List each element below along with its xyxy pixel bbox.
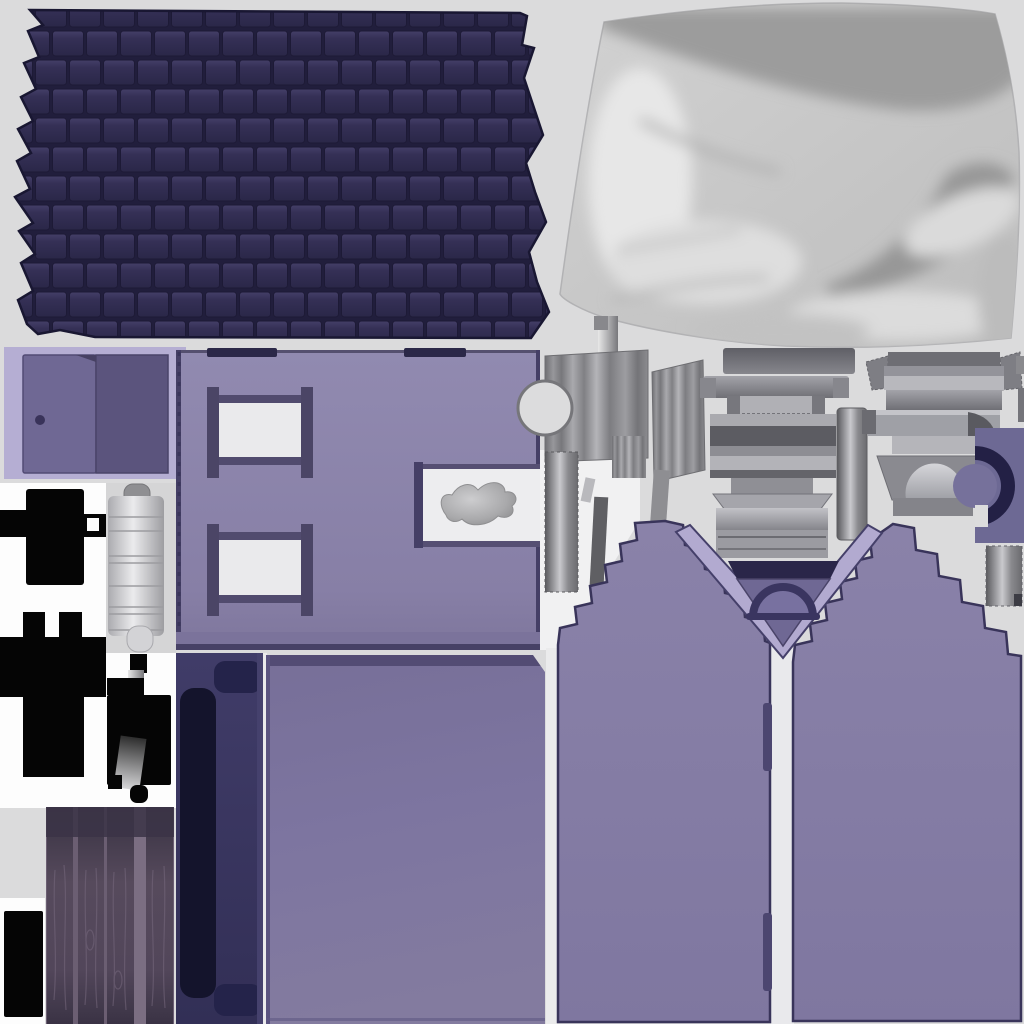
- hardware-black: [108, 775, 122, 789]
- floor-left-edge: [266, 655, 270, 1024]
- window-post: [301, 524, 313, 616]
- roof-shingle-texture: [15, 10, 549, 338]
- part-tab: [833, 378, 849, 398]
- door-panel-island: [4, 347, 186, 479]
- window-glass: [219, 540, 301, 595]
- wood-plank-texture: [46, 807, 174, 1024]
- part-block: [892, 436, 976, 454]
- window-post: [207, 524, 219, 616]
- mask-arm: [0, 510, 28, 537]
- floor-panel: [266, 655, 545, 1024]
- gable-hinge-tab: [763, 703, 772, 771]
- vee-arch-base: [746, 613, 820, 620]
- notch-bottom-trim: [423, 541, 540, 547]
- gable-hinge-tab: [763, 913, 772, 991]
- door-hinge-barrel: [108, 484, 164, 652]
- floor-bottom-edge: [266, 1018, 545, 1021]
- part-trapezoid: [713, 494, 832, 510]
- wall-bottom-shade: [176, 632, 540, 644]
- door-face: [23, 355, 96, 473]
- part-top-bar: [723, 348, 855, 374]
- wall-top-bar: [404, 348, 466, 357]
- part-top-bar: [888, 352, 1000, 366]
- window-frame-upper: [207, 387, 313, 478]
- window-glass: [219, 403, 301, 457]
- part-bar: [884, 366, 1004, 376]
- striped-trim-bar: [986, 546, 1022, 606]
- window-rail: [219, 395, 301, 403]
- window-post: [301, 387, 313, 478]
- part-panel: [740, 396, 812, 416]
- part-flange: [703, 376, 849, 398]
- part-leg: [812, 396, 825, 414]
- door-knob: [35, 415, 45, 425]
- part-panel-highlight: [868, 410, 1000, 415]
- navy-panel-inset: [180, 688, 216, 998]
- wall-panel: [176, 348, 540, 650]
- window-post: [207, 387, 219, 478]
- navy-panel-tab: [214, 984, 262, 1016]
- navy-panel-edge: [257, 653, 263, 1024]
- window-rail: [219, 595, 301, 603]
- window-frame-lower: [207, 524, 313, 616]
- navy-panel-tab: [214, 661, 262, 693]
- mask-tab: [23, 612, 45, 639]
- hardware-cluster-middle: [700, 348, 867, 558]
- atlas-image: [0, 0, 1024, 1024]
- mask-body: [23, 695, 84, 777]
- fabric-texture: [560, 3, 1024, 358]
- part-bar: [716, 508, 828, 530]
- mask-body: [26, 489, 84, 585]
- hardware-black: [107, 678, 144, 695]
- barrel-cap-bottom: [127, 626, 153, 652]
- mask-hole: [87, 518, 99, 531]
- part-leg: [727, 396, 740, 414]
- floor-base: [266, 655, 545, 1024]
- part-block: [612, 436, 646, 478]
- notch-top-trim: [423, 464, 540, 469]
- hardware-black: [130, 785, 148, 803]
- vee-navy-bar: [728, 561, 839, 579]
- part-tab-cap: [594, 316, 608, 330]
- texture-atlas-canvas: [0, 0, 1024, 1024]
- part-tab: [700, 378, 716, 398]
- gable-gap-strip: [771, 645, 794, 1024]
- wall-top-bar: [207, 348, 277, 357]
- plank-top-shadow: [46, 807, 174, 837]
- notch-trim: [414, 462, 423, 548]
- wall-bottom-edge: [176, 644, 540, 650]
- trim-bar-notch: [1014, 594, 1022, 606]
- part-edge-bit: [1018, 388, 1024, 422]
- navy-door-panel: [176, 653, 263, 1024]
- part-bar: [884, 376, 1004, 390]
- part-body: [886, 390, 1002, 410]
- part-tab: [862, 410, 876, 434]
- roof-outline: [15, 10, 549, 338]
- plank-light-strip: [134, 807, 146, 1024]
- wall-notch-cloth: [414, 462, 540, 548]
- planks: [47, 807, 173, 1024]
- part-bar-stack: [710, 414, 836, 478]
- mask-tab: [59, 612, 82, 639]
- window-rail: [219, 457, 301, 465]
- mask-rectangle: [4, 911, 43, 1017]
- vee-arch: [753, 587, 813, 617]
- mask-body: [0, 637, 106, 697]
- part-edge-bit: [1016, 356, 1024, 374]
- floor-top-edge: [266, 655, 545, 666]
- part-bar: [731, 478, 813, 494]
- arch-inner: [953, 464, 997, 508]
- part-banded-block: [652, 360, 705, 482]
- arch-notch: [975, 505, 988, 527]
- part-tall-bar: [545, 452, 578, 592]
- part-bar: [716, 530, 828, 558]
- gap-strip: [546, 648, 557, 1024]
- part-notch: [518, 381, 572, 435]
- door-side: [96, 355, 168, 473]
- window-rail: [219, 532, 301, 540]
